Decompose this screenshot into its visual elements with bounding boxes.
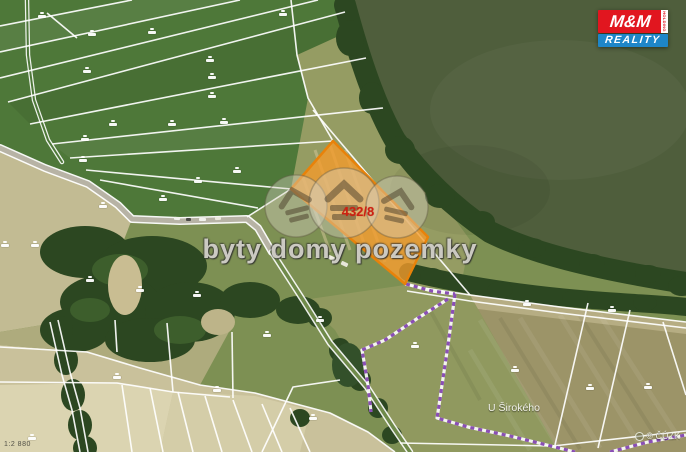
parcel-marker: [87, 30, 97, 38]
parcel-marker: [262, 331, 272, 339]
logo-holding-strip: HOLDING: [661, 10, 668, 33]
logo-holding-text: HOLDING: [662, 11, 667, 32]
map-image: [0, 0, 686, 452]
watermark-text: byty domy pozemky: [150, 234, 530, 265]
parcel-marker: [78, 156, 88, 164]
parcel-marker: [278, 10, 288, 18]
logo-bottom-bar: REALITY: [598, 34, 668, 47]
parcel-marker: [205, 56, 215, 64]
parcel-marker: [510, 366, 520, 374]
parcel-marker: [315, 316, 325, 324]
parcel-marker: [82, 67, 92, 75]
map-attribution: © ČÚZK: [598, 431, 680, 441]
parcel-marker: [98, 202, 108, 210]
place-name-label: U Širokého: [463, 402, 565, 414]
parcel-marker: [147, 28, 157, 36]
mm-reality-logo: M&M HOLDING REALITY: [598, 10, 668, 47]
logo-mm-text: M&M: [609, 13, 656, 30]
parcel-marker: [108, 120, 118, 128]
parcel-marker: [193, 177, 203, 185]
parcel-marker: [167, 120, 177, 128]
parcel-marker: [232, 167, 242, 175]
cuzk-logo-icon: [635, 432, 644, 441]
parcel-marker: [207, 92, 217, 100]
parcel-marker: [607, 306, 617, 314]
parcel-marker: [112, 373, 122, 381]
parcel-marker: [410, 342, 420, 350]
parcel-marker: [192, 291, 202, 299]
parcel-marker: [80, 135, 90, 143]
parcel-marker: [158, 195, 168, 203]
parcel-marker: [643, 383, 653, 391]
highlight-parcel-number: 432/8: [336, 204, 380, 219]
parcel-marker: [135, 286, 145, 294]
parcel-marker: [0, 241, 10, 249]
parcel-marker: [37, 12, 47, 20]
watermark-logo-icon: [265, 168, 428, 238]
logo-reality-text: REALITY: [605, 35, 662, 46]
parcel-marker: [308, 414, 318, 422]
cadastral-map: 432/8 byty domy pozemky U Širokého © ČÚZ…: [0, 0, 686, 452]
parcel-marker: [585, 384, 595, 392]
vehicle: [199, 218, 206, 221]
parcel-marker: [85, 276, 95, 284]
vehicle: [215, 217, 221, 220]
map-scale-label: 1:2 880: [4, 441, 31, 448]
vehicle: [186, 218, 191, 221]
parcel-marker: [522, 300, 532, 308]
parcel-marker: [30, 241, 40, 249]
parcel-marker: [219, 118, 229, 126]
parcel-marker: [212, 386, 222, 394]
vehicle: [174, 217, 180, 220]
logo-top-bar: M&M HOLDING: [598, 10, 668, 33]
attribution-text: © ČÚZK: [646, 431, 680, 441]
parcel-marker: [207, 73, 217, 81]
